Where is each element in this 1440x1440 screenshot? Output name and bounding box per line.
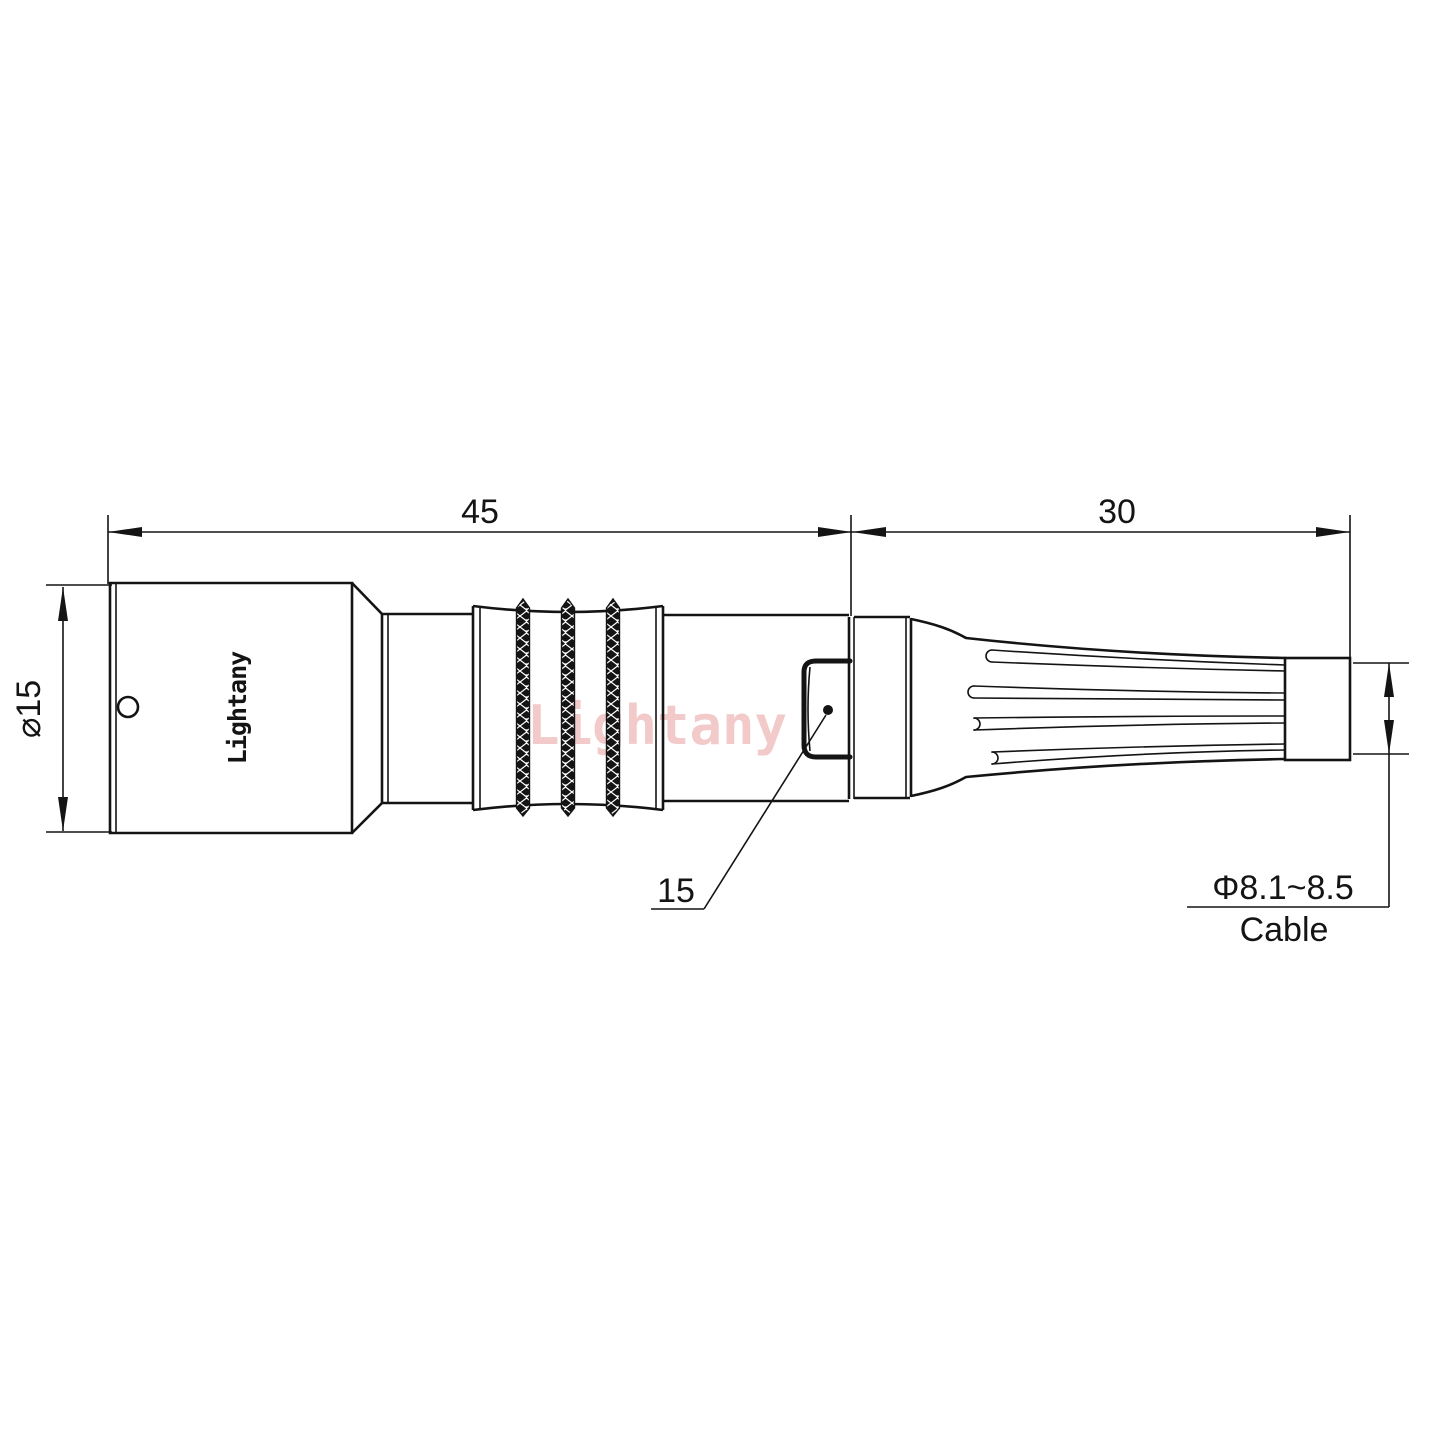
index-hole (118, 697, 138, 717)
dimension-front-length: 45 (108, 493, 852, 616)
body-logo-text: Lightany (223, 651, 252, 764)
boot-top-edge (966, 638, 1285, 658)
collar-section (849, 617, 966, 799)
knurl-band (562, 599, 575, 816)
dimension-value-diameter-15: ⌀15 (10, 680, 48, 738)
fin-line (974, 723, 1285, 730)
taper-bottom (911, 777, 966, 796)
knurl-band (607, 599, 620, 816)
dimension-cable-diameter: Φ8.1~8.5 Cable (1187, 663, 1409, 949)
arrowhead-left (852, 527, 886, 537)
fin-cap (974, 718, 980, 730)
fin-line (974, 716, 1285, 718)
arrowhead-bottom (1384, 720, 1394, 754)
chamfer-bottom (352, 803, 382, 833)
fin-cap (986, 650, 992, 662)
arrowhead-right (818, 527, 852, 537)
dimension-value-30: 30 (1098, 493, 1136, 531)
strain-relief-boot (966, 638, 1285, 777)
knurl-band (517, 599, 530, 816)
latch-inner-curve (808, 667, 810, 751)
fin-cap (992, 752, 998, 764)
arrowhead-right (1316, 527, 1350, 537)
fin-line (974, 698, 1285, 700)
arrowhead-top (58, 587, 68, 621)
cable-end-block (1285, 658, 1350, 760)
chamfer-top (352, 583, 382, 614)
arrowhead-bottom (58, 797, 68, 831)
cable-diameter-value: Φ8.1~8.5 (1212, 869, 1354, 907)
taper-top (911, 619, 966, 638)
fin-cap (968, 686, 974, 698)
drawing-canvas: Lightany 45 30 ⌀15 Lightany (0, 0, 1440, 1440)
fin-line (974, 686, 1285, 693)
dimension-body-diameter: ⌀15 (10, 585, 112, 832)
arrowhead-left (108, 527, 142, 537)
connector-front-body: Lightany (110, 583, 382, 833)
leader-dot (823, 705, 833, 715)
cable-label: Cable (1240, 911, 1329, 949)
latch-ref-value: 15 (657, 872, 695, 910)
end-block-outline (1285, 658, 1350, 760)
connector-technical-drawing: Lightany 45 30 ⌀15 Lightany (0, 0, 1440, 1440)
arrowhead-top (1384, 663, 1394, 697)
fin-line (992, 750, 1285, 764)
latch-feature (804, 661, 850, 757)
dimension-boot-length: 30 (852, 493, 1350, 657)
dimension-value-45: 45 (461, 493, 499, 531)
